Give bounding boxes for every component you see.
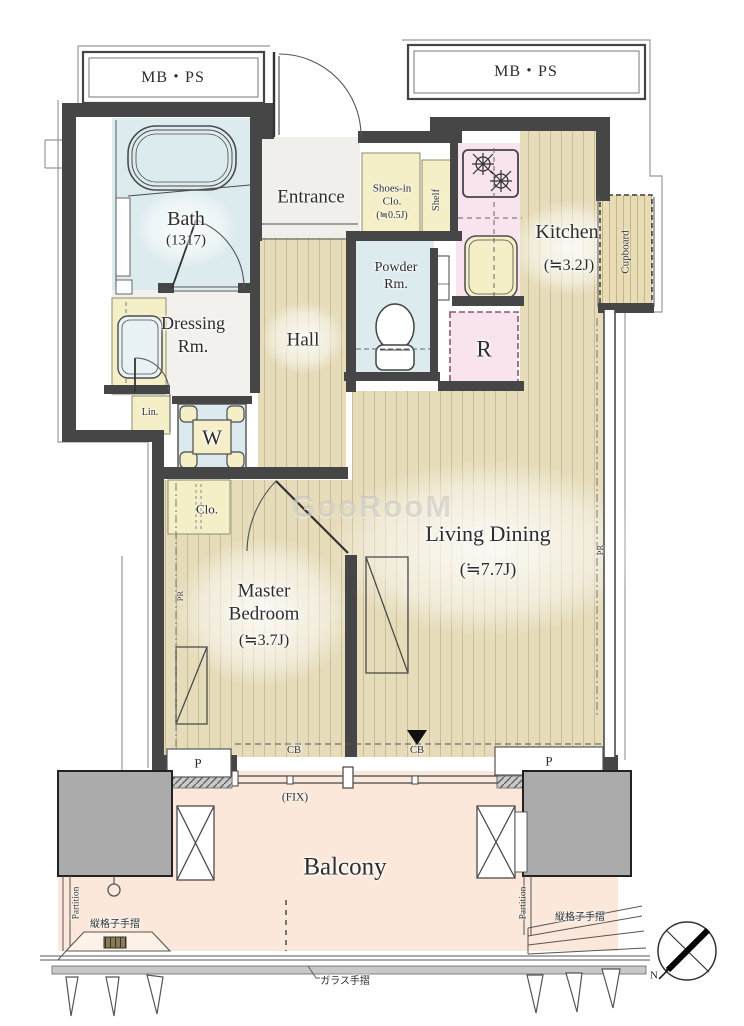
glass-handrail-label: ガラス手摺 [320,977,370,987]
washbasin-cabinet [112,298,166,394]
ac-unit-left [177,806,214,880]
bath-size-label: (1317) [166,234,206,249]
shelf-label: Shelf [432,189,443,211]
window-sill-left [172,776,232,788]
shoes-closet-label-2: Clo. [383,197,402,208]
kitchen-label: Kitchen [535,222,598,242]
balcony-label: Balcony [303,855,386,880]
kitchen-size-label: (≒3.2J) [544,258,594,274]
master-bedroom-label-1: Master [238,582,291,601]
refrigerator-label: R [476,338,491,361]
north-label: N [650,971,658,982]
linen-label: Lin. [142,408,158,418]
cb-right-label: CB [410,746,424,757]
pr-left-label: PR [176,591,185,601]
glass-handrail [40,956,650,978]
cupboard-label: Cupboard [621,230,632,273]
cb-left-label: CB [287,746,301,757]
pillar-left [58,771,172,876]
powder-room-label-1: Powder [375,261,418,275]
master-bedroom-size-label: (≒3.7J) [239,633,289,649]
ac-unit-right [477,806,527,878]
lattice-handrail-right-label: 縦格子手摺 [555,913,605,923]
shower-panel [116,198,130,276]
stove [463,150,518,197]
entrance-door [274,52,361,137]
kitchen-sink [465,236,517,298]
p-left-label: P [194,757,201,770]
bath-counter [116,280,132,294]
powder-room-label-2: Rm. [384,278,408,292]
dressing-room-label-2: Rm. [178,337,209,355]
living-dining-label: Living Dining [425,523,550,545]
hall-label: Hall [287,331,320,350]
right-wall [604,310,615,757]
partition-left-label: Partition [72,887,82,920]
bath-label: Bath [167,209,205,229]
pr-right-label: PR [596,545,605,555]
master-bedroom-label-2: Bedroom [229,605,300,624]
p-right-label: P [545,755,552,768]
partition-right-label: Partition [519,887,529,920]
closet-label: Clo. [196,503,218,516]
washer-label: W [202,428,222,449]
mbps-right-label: MB・PS [494,64,558,80]
fix-window-label: (FIX) [282,792,308,804]
compass [658,922,716,980]
shoes-closet-size-label: (≒0.5J) [376,211,407,221]
floor-plan: MB・PS MB・PS Bath (1317) Entrance Shoes-i… [0,0,744,1026]
mbps-left-label: MB・PS [141,70,205,86]
toilet [376,304,414,370]
entrance-label: Entrance [277,188,345,207]
lattice-handrail-left-label: 縦格子手摺 [90,920,140,930]
living-dining-size-label: (≒7.7J) [460,560,517,578]
window-sill-right [497,776,523,788]
dressing-room-label-1: Dressing [161,314,225,332]
watermark: GooRooM [291,489,453,525]
pillar-right [523,771,631,876]
shoes-closet-label-1: Shoes-in [373,184,412,195]
